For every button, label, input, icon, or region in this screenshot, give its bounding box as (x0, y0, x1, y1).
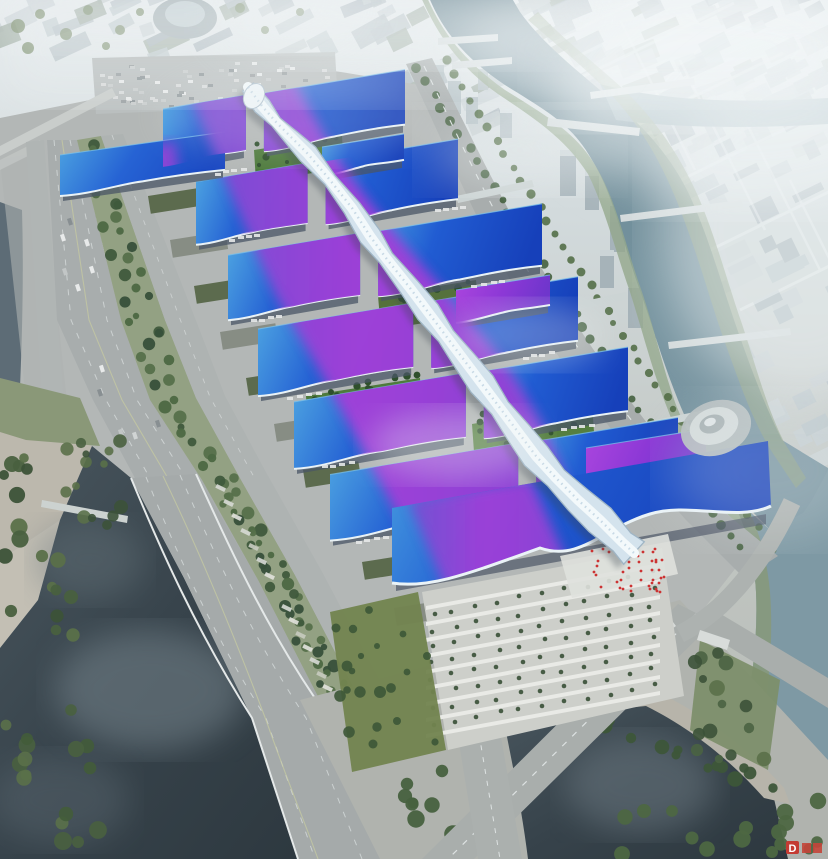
svg-text:D: D (789, 843, 797, 855)
